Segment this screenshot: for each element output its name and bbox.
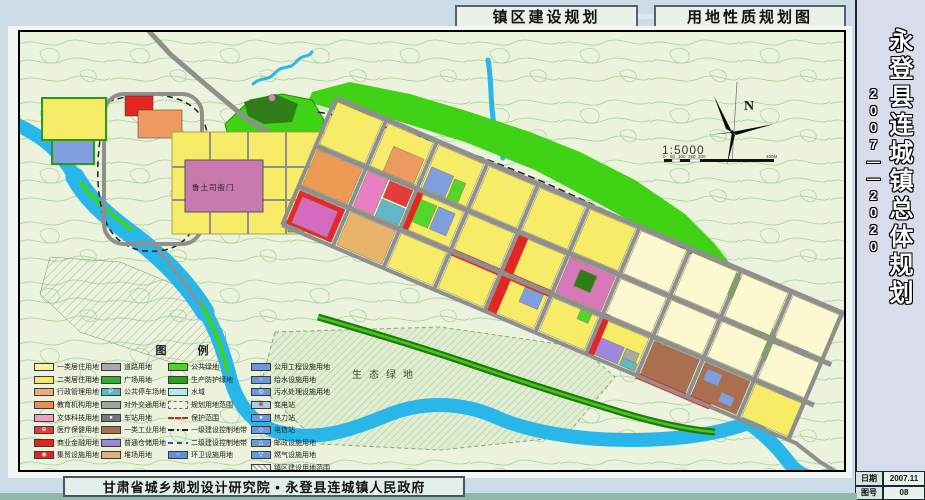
legend-swatch-control-line-1: [168, 429, 188, 431]
sheet-info-table: 日期 2007.11 图号 08: [855, 471, 925, 500]
legend-swatch: ◎: [251, 388, 271, 396]
legend-item: 行政管理用地: [34, 386, 96, 399]
map-frame: 生态绿地: [18, 30, 846, 472]
legend-item: 一类居住用地: [34, 361, 96, 374]
title-tab-landuse: 用地性质规划图: [654, 5, 846, 28]
legend-label: 二类居住用地: [57, 375, 99, 385]
legend-swatch: ◉: [34, 451, 54, 459]
legend-label: 集贸设施用地: [57, 450, 99, 460]
legend-item: P公共停车场地: [101, 386, 163, 399]
legend-label: 一类工业用地: [124, 425, 166, 435]
legend-label: 水域: [191, 387, 205, 397]
sheet-number-value: 08: [883, 486, 925, 500]
legend-column-4: 公用工程设施用地 ○给水设施用地 ◎污水处理设施用地 ⊗变电站 ●热力站 ◇电信…: [251, 361, 330, 472]
legend-item: ▽燃气设施用地: [251, 449, 330, 462]
title-block-sidebar: 永登县连城镇总体规划 2007——2020: [855, 0, 925, 500]
legend-label: 规划用地范围: [191, 400, 233, 410]
legend-item: 二级建设控制地带: [168, 437, 246, 450]
legend-label: 广场用地: [124, 375, 152, 385]
legend-swatch: P: [101, 388, 121, 396]
drawing-title: 永登县连城镇总体规划: [881, 28, 916, 308]
legend-item: 公用工程设施用地: [251, 361, 330, 374]
legend-label: 商业金融用地: [57, 438, 99, 448]
legend-swatch: [101, 439, 121, 447]
legend-item: 道路用地: [101, 361, 163, 374]
legend-swatch: [34, 376, 54, 384]
legend-label: 堆场用地: [124, 450, 152, 460]
legend-swatch: ●: [101, 414, 121, 422]
legend-item: ●热力站: [251, 411, 330, 424]
legend-label: 变电站: [274, 400, 295, 410]
credit-text: 甘肃省城乡规划设计研究院 • 永登县连城镇人民政府: [103, 477, 426, 496]
legend-label: 热力站: [274, 413, 295, 423]
legend-label: 一类居住用地: [57, 362, 99, 372]
scale-tick: 50: [670, 154, 676, 159]
scale-tick: 200: [698, 154, 706, 159]
legend-label: 生产防护绿地: [191, 375, 233, 385]
title-tab-construction-label: 镇区建设规划: [492, 6, 600, 27]
legend-swatch-dashed-boundary: [168, 401, 188, 409]
legend-swatch: [34, 401, 54, 409]
legend-item: ○环卫设施用地: [168, 449, 246, 462]
legend-column-1: 一类居住用地 二类居住用地 行政管理用地 教育机构用地 文体科技用地 ⊕医疗保健…: [34, 361, 96, 472]
legend-swatch: [251, 363, 271, 371]
legend-item: ⊗变电站: [251, 399, 330, 412]
legend-swatch: ⊕: [34, 426, 54, 434]
north-label: N: [744, 99, 754, 114]
legend-label: 邮政设施用地: [274, 438, 316, 448]
legend-label: 公用工程设施用地: [274, 362, 330, 372]
date-value: 2007.11: [883, 471, 925, 486]
scale-tick: 100: [678, 154, 686, 159]
legend-label: 污水处理设施用地: [274, 387, 330, 397]
legend-label: 给水设施用地: [274, 375, 316, 385]
legend-label: 公共停车场地: [124, 387, 166, 397]
legend-swatch: ◇: [251, 426, 271, 434]
legend-item: ◎污水处理设施用地: [251, 386, 330, 399]
legend-label: 燃气设施用地: [274, 450, 316, 460]
sheet-number-label: 图号: [855, 486, 883, 500]
legend-swatch: ●: [251, 414, 271, 422]
legend-swatch: ○: [251, 376, 271, 384]
legend-swatch: [168, 363, 188, 371]
legend-item: ⊕医疗保健用地: [34, 424, 96, 437]
legend-label: 教育机构用地: [57, 400, 99, 410]
legend-item: 教育机构用地: [34, 399, 96, 412]
title-tab-landuse-label: 用地性质规划图: [687, 6, 813, 27]
legend-item: 一类工业用地: [101, 424, 163, 437]
legend-swatch: [34, 414, 54, 422]
legend-swatch: [168, 376, 188, 384]
legend-label: 道路用地: [124, 362, 152, 372]
date-label: 日期: [855, 471, 883, 486]
legend-swatch: ▽: [251, 451, 271, 459]
legend-column-3: 公共绿地 生产防护绿地 水域 规划用地范围 保护范围 一级建设控制地带 二级建设…: [168, 361, 246, 472]
legend-swatch: [101, 401, 121, 409]
drawing-title-vertical: 永登县连城镇总体规划 2007——2020: [866, 28, 916, 308]
legend-label: 电信站: [274, 425, 295, 435]
tab-connector: [636, 14, 656, 19]
legend-item: 水域: [168, 386, 246, 399]
legend-item: 广场用地: [101, 374, 163, 387]
legend-swatch: [34, 439, 54, 447]
credit-box: 甘肃省城乡规划设计研究院 • 永登县连城镇人民政府: [63, 476, 465, 497]
legend-item: 保护范围: [168, 411, 246, 424]
legend-item: △邮政设施用地: [251, 437, 330, 450]
legend-label: 行政管理用地: [57, 387, 99, 397]
legend-label: 二级建设控制地带: [191, 438, 247, 448]
legend-item: ○给水设施用地: [251, 374, 330, 387]
scale-tick: 150: [688, 154, 696, 159]
legend-item: ◇电信站: [251, 424, 330, 437]
planning-period: 2007——2020: [866, 86, 881, 256]
legend-swatch-town-boundary: [251, 464, 271, 472]
legend-label: 对外交通用地: [124, 400, 166, 410]
legend-swatch: [168, 388, 188, 396]
legend-item: 堆场用地: [101, 449, 163, 462]
legend-item: 文体科技用地: [34, 411, 96, 424]
title-tab-construction: 镇区建设规划: [455, 5, 638, 28]
legend-item: 一级建设控制地带: [168, 424, 246, 437]
legend-item: 公共绿地: [168, 361, 246, 374]
legend-label: 镇区建设用地范围: [274, 463, 330, 472]
legend-item: 规划用地范围: [168, 399, 246, 412]
legend-swatch: ○: [168, 451, 188, 459]
legend-swatch: [34, 388, 54, 396]
legend: 图 例 一类居住用地 二类居住用地 行政管理用地 教育机构用地 文体科技用地 ⊕…: [34, 342, 330, 472]
legend-swatch: [101, 376, 121, 384]
legend-item: 普通仓储用地: [101, 437, 163, 450]
legend-title: 图 例: [34, 342, 330, 358]
legend-item: 对外交通用地: [101, 399, 163, 412]
legend-item: 生产防护绿地: [168, 374, 246, 387]
legend-swatch: [101, 426, 121, 434]
legend-label: 普通仓储用地: [124, 438, 166, 448]
legend-label: 医疗保健用地: [57, 425, 99, 435]
legend-label: 一级建设控制地带: [191, 425, 247, 435]
legend-label: 环卫设施用地: [191, 450, 233, 460]
legend-item: 二类居住用地: [34, 374, 96, 387]
legend-swatch: ⊗: [251, 401, 271, 409]
legend-item: ●车站用地: [101, 411, 163, 424]
legend-swatch: [101, 451, 121, 459]
legend-item: 镇区建设用地范围: [251, 462, 330, 472]
eco-green-label: 生态绿地: [352, 368, 420, 381]
scale-tick: 400M: [766, 154, 778, 159]
legend-label: 保护范围: [191, 413, 219, 423]
legend-item: ◉集贸设施用地: [34, 449, 96, 462]
legend-swatch: [34, 363, 54, 371]
legend-label: 公共绿地: [191, 362, 219, 372]
legend-swatch-control-line-2: [168, 442, 188, 444]
legend-swatch: △: [251, 439, 271, 447]
legend-swatch-protection-line: [168, 417, 188, 419]
legend-column-2: 道路用地 广场用地 P公共停车场地 对外交通用地 ●车站用地 一类工业用地 普通…: [101, 361, 163, 472]
legend-label: 文体科技用地: [57, 413, 99, 423]
heritage-label: 鲁土司衙门: [192, 182, 235, 192]
legend-swatch: [101, 363, 121, 371]
legend-label: 车站用地: [124, 413, 152, 423]
legend-item: 商业金融用地: [34, 437, 96, 450]
